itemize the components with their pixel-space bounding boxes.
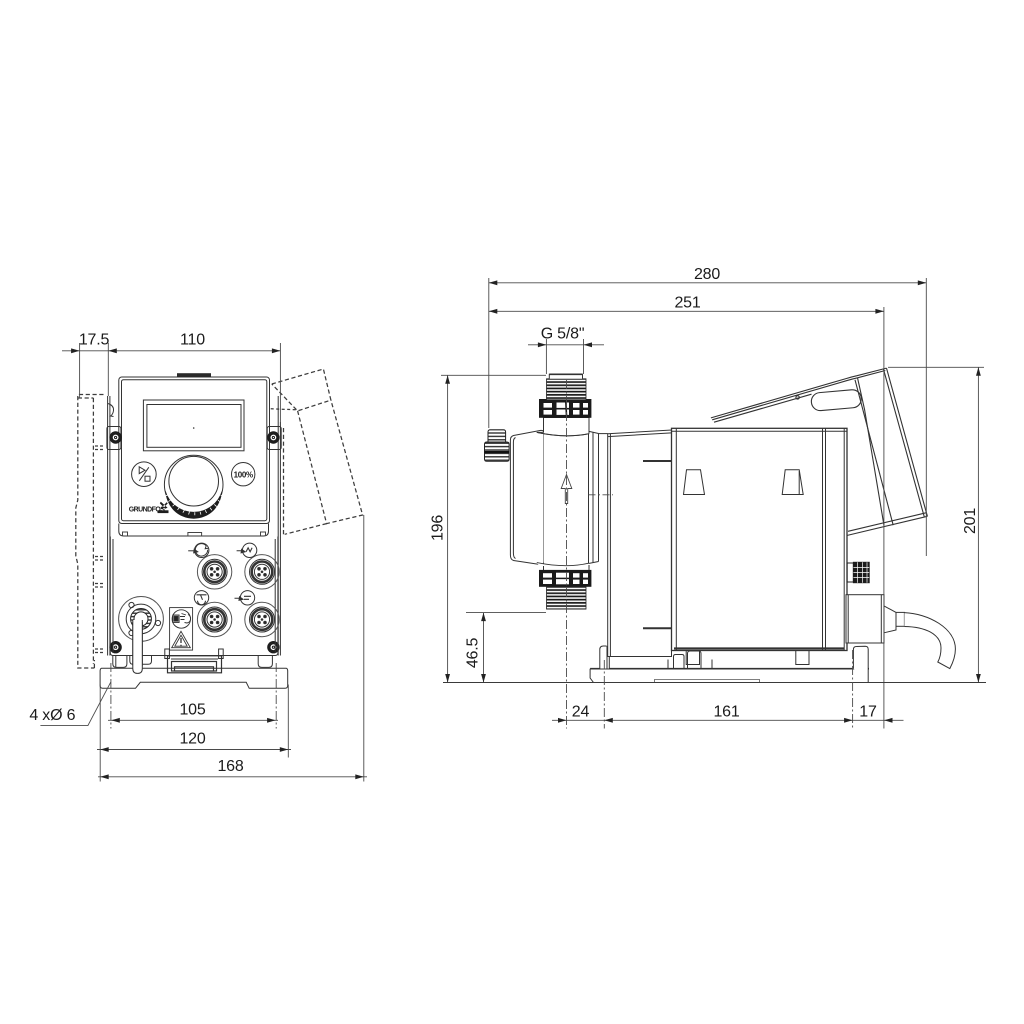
svg-text:196: 196 (430, 515, 447, 541)
svg-text:110: 110 (180, 332, 205, 349)
svg-text:251: 251 (674, 294, 700, 311)
svg-text:4 xØ 6: 4 xØ 6 (29, 707, 75, 724)
svg-text:17.5: 17.5 (79, 332, 110, 349)
svg-text:201: 201 (962, 508, 979, 534)
svg-text:17: 17 (859, 703, 877, 720)
svg-text:161: 161 (713, 703, 739, 720)
svg-text:G 5/8": G 5/8" (541, 326, 585, 343)
svg-text:168: 168 (217, 758, 243, 775)
svg-text:46.5: 46.5 (465, 638, 482, 669)
svg-text:120: 120 (179, 730, 205, 747)
svg-text:24: 24 (572, 703, 590, 720)
svg-text:100%: 100% (234, 470, 253, 479)
svg-text:280: 280 (694, 266, 720, 283)
svg-text:105: 105 (179, 701, 205, 718)
